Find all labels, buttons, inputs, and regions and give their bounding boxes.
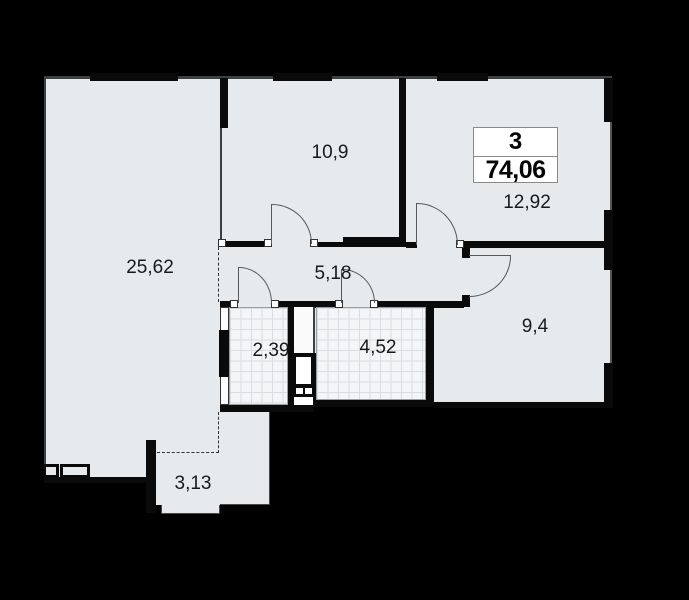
dashed-living-balcony-h [157,452,219,453]
room-label-bedroom-top: 10,9 [312,142,349,164]
room-label-bedroom-small: 9,4 [522,316,548,338]
room-label-hallway: 5,18 [315,263,352,285]
wall-top-pier-1 [90,73,178,81]
balcony-edge-right [269,412,271,505]
wall-right-top [604,78,613,122]
window-box-left-2 [60,464,90,478]
room-label-living: 25,62 [126,257,174,279]
room-label-bathroom: 4,52 [360,337,397,359]
jamb-wc-2 [271,300,279,308]
shaft-cell-top [296,357,311,384]
badge-total-area: 74,06 [474,157,557,183]
window-bedroom-small [610,270,613,363]
wall-right-mid [604,210,613,270]
wall-bedrooms-divider [399,78,406,242]
room-label-wc: 2,39 [253,340,290,362]
dashed-living-balcony-v [218,412,219,453]
door-leaf-bedroom-right [416,203,417,245]
wall-balcony-left-stub [146,440,156,513]
wall-bedroom-right-bottom [457,241,612,248]
duct-space [294,307,313,353]
wall-living-thin [220,128,222,242]
door-leaf-bedroom-top [271,204,272,244]
jamb-bedroom-top-1 [218,239,226,247]
wall-left [44,78,46,477]
window-box-left-1 [43,464,59,478]
room-label-bedroom-right: 12,92 [503,192,551,214]
wall-bedroom-top-bottom-thick [343,237,406,247]
door-leaf-wc [238,267,239,303]
badge-rooms-count: 3 [474,128,557,157]
wall-bottom-right [434,402,612,408]
wall-bottom-bathroom [313,400,434,407]
balcony-floor-upper [220,412,270,505]
window-bedroom-right [610,122,613,210]
jamb-wc-1 [230,300,238,308]
wall-living-stub [220,78,228,128]
apartment-badge: 3 74,06 [473,127,558,183]
wall-top-pier-2 [273,73,332,81]
shaft-cell-small-2 [305,388,312,394]
dashed-living-hall [218,247,219,302]
room-label-balcony: 3,13 [175,473,212,495]
shaft-cell-small-1 [296,388,303,394]
floor-plan-canvas: 3 74,06 25,62 10,9 12,92 5,18 2,39 4,52 … [0,0,689,600]
wall-bedroom-top-bottom-mid [317,242,343,247]
door-leaf-bedroom-small [469,255,511,256]
wall-bathroom-right [426,302,434,403]
wall-top-pier-3 [437,73,488,81]
wall-niche-black [219,330,229,377]
balcony-edge-bottom [220,504,270,506]
balcony-bottom-notch [161,505,220,514]
shaft-cell-bottom [294,397,313,405]
